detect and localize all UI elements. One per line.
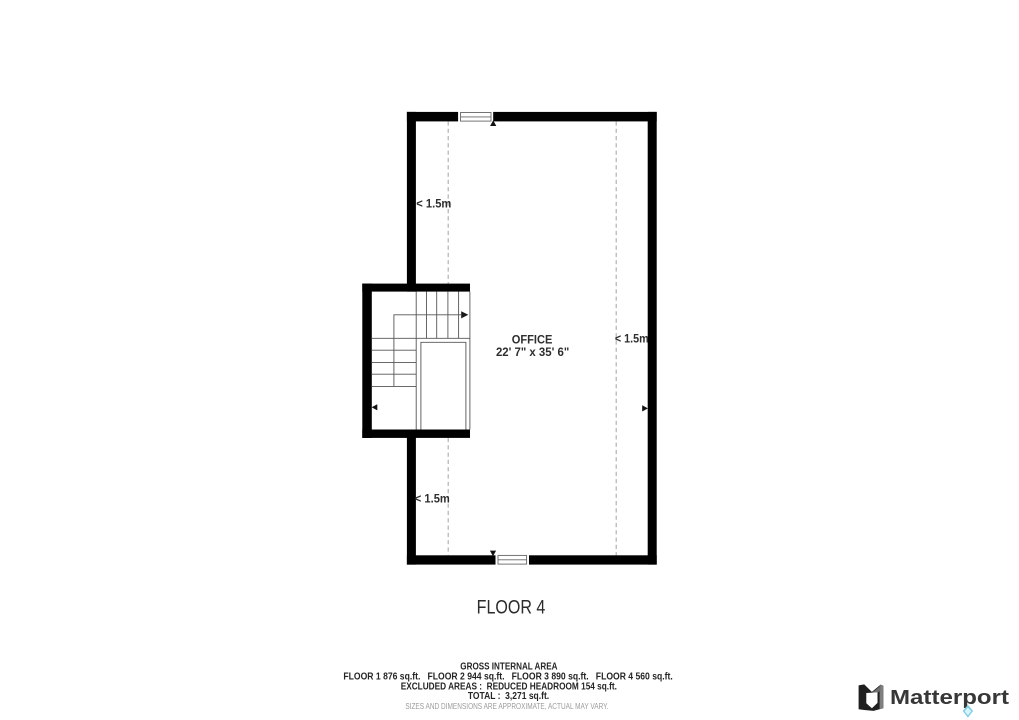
svg-text:< 1.5m: < 1.5m [415, 493, 450, 505]
svg-text:< 1.5m: < 1.5m [416, 199, 451, 211]
svg-text:TOTAL : 3,271 sq.ft.: TOTAL : 3,271 sq.ft. [468, 691, 550, 702]
svg-text:< 1.5m: < 1.5m [615, 334, 649, 346]
svg-text:FLOOR 4: FLOOR 4 [477, 598, 546, 619]
svg-text:SIZES AND DIMENSIONS ARE APPRO: SIZES AND DIMENSIONS ARE APPROXIMATE, AC… [405, 702, 608, 711]
svg-text:22' 7" x 35' 6": 22' 7" x 35' 6" [496, 345, 569, 359]
svg-text:Matterport: Matterport [890, 686, 1009, 709]
